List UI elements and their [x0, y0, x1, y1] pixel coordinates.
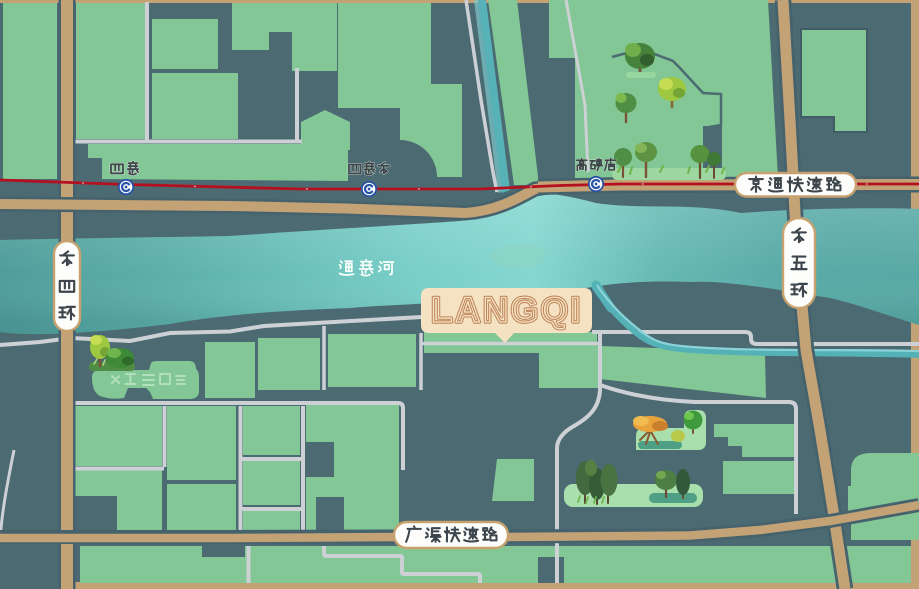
- svg-text:LANGQI: LANGQI: [431, 291, 583, 330]
